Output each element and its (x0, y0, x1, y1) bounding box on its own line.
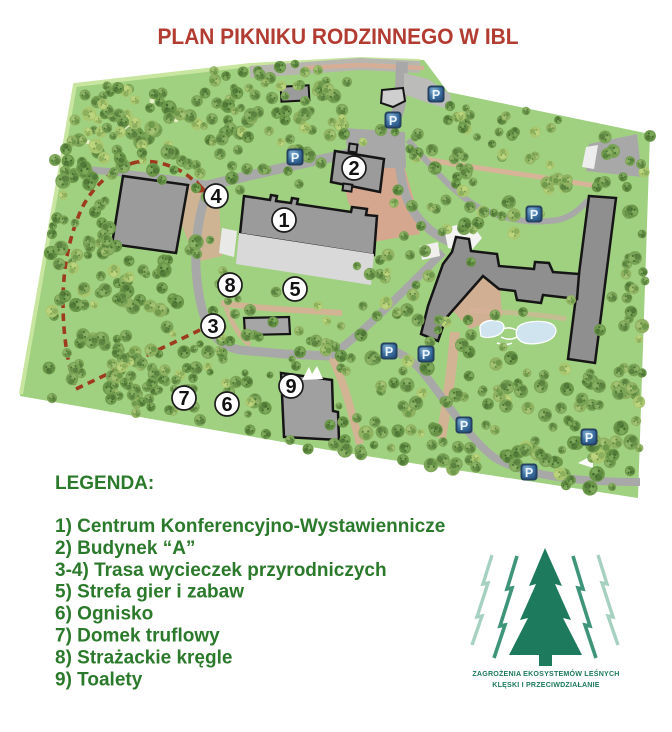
svg-text:5) Strefa gier i zabaw: 5) Strefa gier i zabaw (55, 582, 244, 603)
svg-text:8: 8 (224, 275, 235, 297)
svg-text:KLĘSKI I PRZECIWDZIAŁANIE: KLĘSKI I PRZECIWDZIAŁANIE (492, 681, 600, 689)
svg-text:LEGENDA:: LEGENDA: (55, 473, 154, 494)
svg-text:4: 4 (210, 186, 222, 208)
svg-text:6) Ognisko: 6) Ognisko (55, 604, 153, 625)
svg-text:7: 7 (178, 388, 189, 410)
svg-text:6: 6 (221, 394, 232, 416)
svg-text:ZAGROŻENIA EKOSYSTEMÓW LEŚNYCH: ZAGROŻENIA EKOSYSTEMÓW LEŚNYCH (472, 669, 619, 678)
svg-text:3-4) Trasa wycieczek przyrodni: 3-4) Trasa wycieczek przyrodniczych (55, 560, 387, 581)
svg-text:1) Centrum Konferencyjno-Wysta: 1) Centrum Konferencyjno-Wystawiennicze (55, 516, 445, 537)
svg-text:7) Domek truflowy: 7) Domek truflowy (55, 626, 220, 647)
svg-text:2) Budynek “A”: 2) Budynek “A” (55, 538, 195, 559)
svg-text:9) Toalety: 9) Toalety (55, 669, 143, 690)
svg-text:5: 5 (289, 279, 300, 301)
svg-text:1: 1 (278, 210, 289, 232)
svg-text:9: 9 (285, 376, 296, 398)
svg-text:PLAN PIKNIKU RODZINNEGO W IBL: PLAN PIKNIKU RODZINNEGO W IBL (158, 24, 519, 49)
svg-text:3: 3 (207, 316, 218, 338)
svg-text:8) Strażackie kręgle: 8) Strażackie kręgle (55, 647, 232, 668)
svg-text:2: 2 (348, 158, 359, 180)
